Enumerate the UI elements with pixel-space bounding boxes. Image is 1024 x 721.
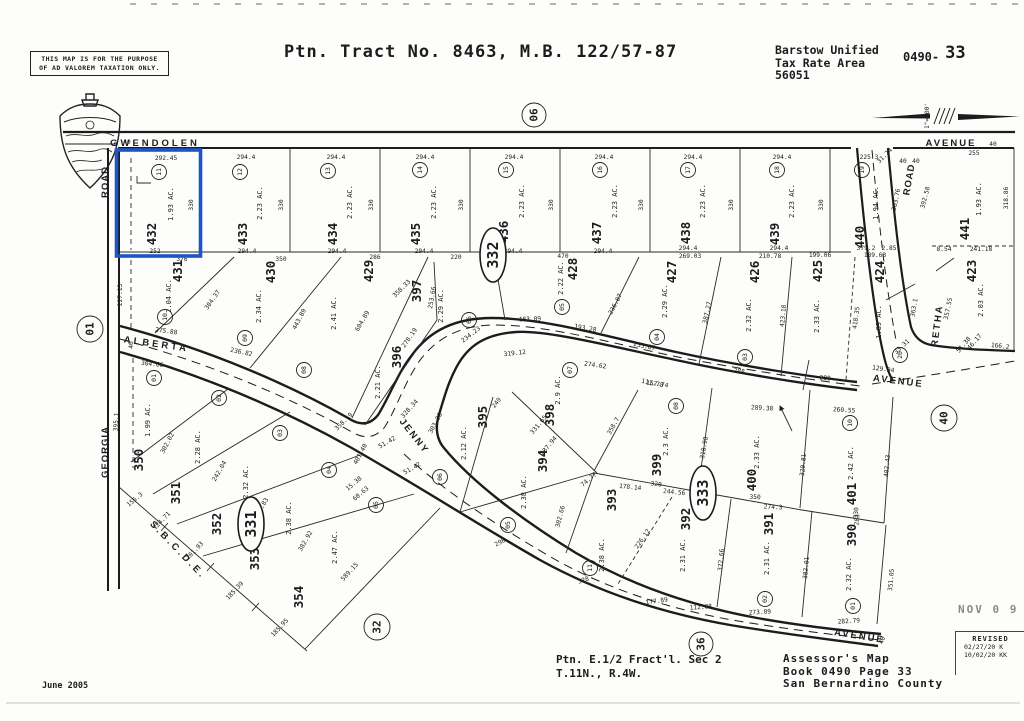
dimension-label: 330 [278,199,285,210]
dimension-label: 351.05 [887,568,896,591]
dimension-label: 275.88 [155,326,178,336]
parcel-acreage: 2.28 AC. [194,430,202,464]
dimension-label: 51.42 [377,435,397,451]
dimension-label: 178.14 [619,483,642,492]
dimension-label: 302.02 [159,432,176,455]
parcel-number: 429 [361,260,376,283]
parcel-number: 440 [852,226,867,249]
parcel-acreage: 2.04 AC. [165,279,173,313]
lot-number: 03 [276,429,284,437]
lot-number: 11 [586,564,594,572]
dimension-label: 280 [819,375,831,383]
dimension-label: 292.45 [155,155,178,162]
adjacent-section-number: 06 [528,108,541,122]
parcel-acreage: 2.32 AC. [845,557,853,591]
parcel-number: 352 [209,513,224,536]
parcel-acreage: 2.23 AC. [518,184,526,218]
lot-number: 09 [241,334,249,342]
dimension-label: 157.74 [646,379,669,389]
dimension-label: 40 [128,341,135,349]
dimension-label: 189.63 [864,252,887,259]
dimension-label: 330 [728,199,735,210]
adjacent-section-number: 36 [695,637,708,651]
parcel-number: 396 [389,346,404,369]
dimension-label: 255 [968,150,979,157]
dimension-label: 40 [878,636,887,646]
dimension-label: 40 [912,158,920,165]
dimension-label: 401.40 [352,443,369,466]
parcel-number: 427 [664,261,679,284]
parcel-number: 439 [767,223,782,246]
parcel-acreage: 2.03 AC. [977,283,985,317]
lot-number: 11 [155,168,163,176]
dimension-label: 418.35 [851,306,861,329]
dimension-label: 330 [638,199,645,210]
parcel-acreage: 2.47 AC. [331,530,339,564]
parcel-number: 432 [144,223,159,246]
parcel-acreage: 2.29 AC. [437,289,445,323]
dimension-label: 387.27 [702,301,714,325]
parcel-number: 424 [872,261,887,284]
dimension-label: 282.79 [837,617,860,626]
dimension-label: 318.98 [699,436,710,459]
dimension-label: 294.4 [594,248,613,255]
lot-number: 06 [436,473,444,481]
dimension-label: 220 [450,254,461,261]
dimension-label: 241.18 [970,246,993,253]
street-name-label: AVENUE [872,373,924,390]
lot-number: 18 [773,166,781,174]
parcel-number: 401 [844,483,859,506]
dimension-label: 382.92 [297,530,314,553]
dimension-label: 112.08 [689,603,712,612]
parcel-acreage: 2.12 AC. [460,426,468,460]
parcel-number: 438 [678,222,693,245]
parcel-number: 423 [964,260,979,283]
dimension-label: 273.09 [749,608,772,616]
dimension-label: 260.55 [833,406,856,415]
lot-number: 15 [502,166,510,174]
parcel-number: 351 [168,482,183,505]
block-number: 331 [242,510,260,537]
parcel-number: 392 [678,508,693,531]
parcel-acreage: 2.41 AC. [330,296,338,330]
lot-number: 07 [566,366,574,374]
dimension-label: 244.56 [663,488,686,497]
assessor-map-page: { "header": { "disclaimer_line1": "THIS … [0,0,1024,721]
parcel-number: 433 [235,223,250,246]
block-number: 333 [694,479,712,506]
dimension-label: 236.87 [607,293,624,316]
dimension-label: 252 [149,248,160,255]
parcel-number: 398 [542,404,557,427]
dimension-label: 294.4 [415,248,434,255]
parcel-acreage: 2.34 AC. [255,289,263,323]
parcel-number: 428 [565,258,580,281]
dimension-label: 288 [733,367,745,375]
parcel-number: 425 [810,260,825,283]
dimension-label: 210.78 [759,253,782,260]
lot-number: 05 [504,521,512,529]
parcel-acreage: 2.23 AC. [699,184,707,218]
adjacent-section-number: 01 [84,322,97,336]
parcel-acreage: 2.32 AC. [242,465,250,499]
parcel-acreage: 2.38 AC. [598,538,606,572]
lot-number: 02 [215,394,223,402]
parcel-acreage: 2.33 AC. [753,435,761,469]
dimension-label: 294.4 [328,248,347,255]
parcel-acreage: 2.23 AC. [256,186,264,220]
dimension-label: 294.4 [237,154,256,161]
dimension-label: 589.15 [340,561,360,582]
dimension-label: 304.66 [141,360,164,369]
dimension-label: 199.06 [809,252,832,259]
street-name-label: JENNY [397,417,431,457]
lot-number: 02 [761,595,769,603]
dimension-label: 227.13 [117,284,124,307]
dimension-label: 330 [818,199,825,210]
lot-number: 06 [465,316,473,324]
lot-number: 08 [672,402,680,410]
dimension-label: 40 [899,158,907,165]
street-name-label: AVENUE [926,138,977,149]
dimension-label: 2.85 [882,245,897,252]
dimension-label: 294.4 [773,154,792,161]
parcel-acreage: 2.22 AC. [557,261,565,295]
dimension-label: 294.4 [416,154,435,161]
lot-number: 13 [324,167,332,175]
parcel-acreage: 1.99 AC. [144,403,152,437]
dimension-label: 423.18 [779,304,788,327]
lot-number: 10 [161,313,169,321]
parcel-number: 393 [604,489,619,512]
street-name-label: RETHA [929,304,945,348]
parcel-acreage: 2.21 AC. [374,365,382,399]
dimension-label: 330 [368,199,375,210]
parcel-number: 350 [131,449,146,472]
parcel-acreage: 2.23 AC. [611,184,619,218]
dimension-label: 350 [749,494,761,502]
parcel-number: 394 [535,450,550,473]
dimension-label: 31.24 [876,147,894,165]
dimension-label: 193.28 [574,323,597,334]
dimension-label: 358.7 [606,416,622,436]
dimension-label: 294.4 [505,154,524,161]
parcel-number: 391 [761,513,776,536]
parcel-acreage: 2.23 AC. [788,184,796,218]
dimension-label: 40 [989,141,997,148]
parcel-number: 390 [844,524,859,547]
parcel-acreage: 1.89 AC. [875,305,883,339]
parcel-number: 431 [170,260,185,283]
parcel-acreage: 2.38 AC. [285,501,293,535]
lot-number: 03 [741,353,749,361]
dimension-label: 289.38 [751,404,774,412]
lot-number: 04 [325,466,333,474]
parcel-number: 441 [957,218,972,241]
parcel-number: 426 [747,261,762,284]
dimension-label: 328.34 [400,398,420,419]
lot-number: 01 [150,374,158,382]
parcel-acreage: 2.31 AC. [763,541,771,575]
dimension-label: 604.89 [354,310,371,333]
dimension-label: 303.28 [427,412,444,435]
parcel-acreage: 1.94 AC. [872,186,880,220]
dimension-label: 155.3 [126,491,145,509]
adjacent-section-number: 40 [938,411,951,424]
dimension-label: 320 [650,480,662,488]
dimension-label: 242.04 [211,460,228,483]
dimension-label: 330 [188,199,195,210]
dimension-label: 320.81 [799,453,808,476]
dimension-label: 8.54 [937,246,952,253]
street-name-label: GEORGIA [100,426,111,478]
lot-number: 05 [558,303,566,311]
dimension-label: 330 [458,199,465,210]
dimension-label: 269.03 [679,253,702,260]
dimension-label: 294.4 [327,154,346,161]
parcel-number: 399 [649,454,664,477]
dimension-label: 185.95 [270,617,291,638]
scale-label: 1"=200' [924,103,931,129]
lot-number: 19 [858,166,866,174]
dimension-label: 40 [123,139,131,146]
lot-number: 10 [846,419,854,427]
alberta-avenue-centerline [120,325,860,437]
dimension-label: 185.39 [225,580,246,601]
dimension-label: 302.66 [554,505,567,529]
dimension-label: 294.4 [684,154,703,161]
parcel-acreage: 2.29 AC. [661,284,669,318]
dimension-label: 372.66 [717,548,726,571]
parcel-number: 395 [475,406,490,429]
dimension-label: 395.1 [113,412,121,431]
parcel-acreage: 2.31 AC. [679,538,687,572]
dimension-label: 402.43 [883,454,892,477]
lot-number: 16 [596,166,604,174]
lot-number: 08 [300,366,308,374]
parcel-number: 435 [408,223,423,246]
dimension-label: 392.58 [919,186,932,210]
lot-number: 04 [653,333,661,341]
parcel-number: 430 [263,261,278,284]
block-number: 332 [484,241,502,268]
parcel-acreage: 2.3 AC. [662,426,670,456]
dimension-label: 274.62 [584,360,607,370]
lot-number: 01 [849,602,857,610]
dimension-label: 319.12 [503,349,526,358]
lot-number: 12 [236,168,244,176]
parcel-acreage: 2.32 AC. [745,298,753,332]
dimension-label: 294.4 [238,248,257,255]
street-name-label: ROAD [100,166,111,198]
dimension-label: 357.55 [943,297,955,321]
parcel-acreage: 1.93 AC. [975,182,983,216]
dimension-label: 294.4 [679,245,698,252]
lot-number: 20 [896,351,904,359]
dimension-label: 318.86 [1003,187,1010,210]
parcel-number: 434 [325,223,340,246]
parcel-number: 400 [744,469,759,492]
dimension-label: 236.82 [230,347,254,359]
dimension-label: 330 [548,199,555,210]
parcel-acreage: 2.23 AC. [430,185,438,219]
dimension-label: 183.09 [519,316,542,324]
parcel-number: 437 [589,222,604,245]
lot-number: 14 [416,166,424,174]
dimension-label: 101.93 [185,540,206,561]
lot-number: 17 [684,166,692,174]
dimension-label: 304.37 [203,289,222,312]
dimension-label: 226.12 [633,528,652,551]
assessor-map-canvas: 1"=200' [0,0,1024,721]
dimension-label: 51.42 [402,461,422,477]
adjacent-section-number: 32 [371,620,384,633]
dimension-label: 274.3 [764,504,783,512]
parcel-acreage: 2.23 AC. [346,185,354,219]
parcel-acreage: 2.38 AC. [520,475,528,509]
street-name-label: ROAD [901,163,917,196]
parcel-acreage: 2.9 AC. [554,375,562,405]
dimension-label: 294.4 [595,154,614,161]
dimension-label: 363.1 [909,298,919,318]
parcel-acreage: 1.93 AC. [167,187,175,221]
parcel-number: 354 [291,586,306,609]
parcel-acreage: 2.33 AC. [813,299,821,333]
parcel-acreage: 2.42 AC. [847,446,855,480]
lot-number: 05 [372,501,380,509]
parcel-number: 397 [409,280,424,303]
dimension-label: 382.01 [802,556,811,579]
scale-bar: 1"=200' [872,103,1020,129]
dimension-label: 443.89 [291,308,308,331]
